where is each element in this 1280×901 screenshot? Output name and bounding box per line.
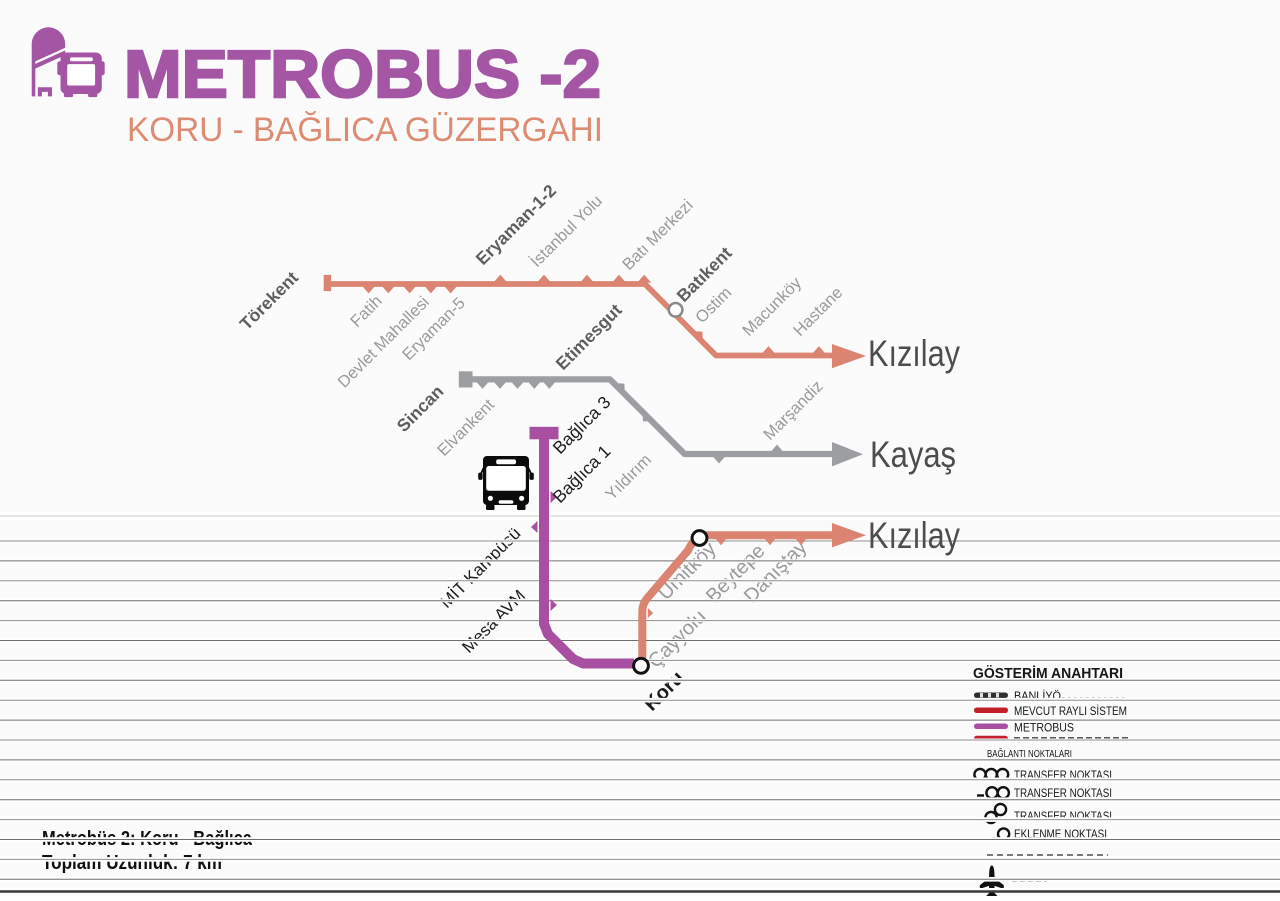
svg-text:METROBÜS: METROBÜS <box>1014 723 1074 735</box>
svg-text:MEVCUT RAYLI SİSTEM: MEVCUT RAYLI SİSTEM <box>1014 705 1127 718</box>
svg-text:Kızılay: Kızılay <box>868 333 960 374</box>
svg-text:METROBUS -2: METROBUS -2 <box>124 37 601 112</box>
svg-text:KORU - BAĞLICA GÜZERGAHI: KORU - BAĞLICA GÜZERGAHI <box>127 111 603 149</box>
svg-text:Toplam Uzunluk: 7 km: Toplam Uzunluk: 7 km <box>42 852 222 874</box>
svg-text:Kayaş: Kayaş <box>870 434 956 475</box>
svg-text:Kızılay: Kızılay <box>868 515 960 556</box>
